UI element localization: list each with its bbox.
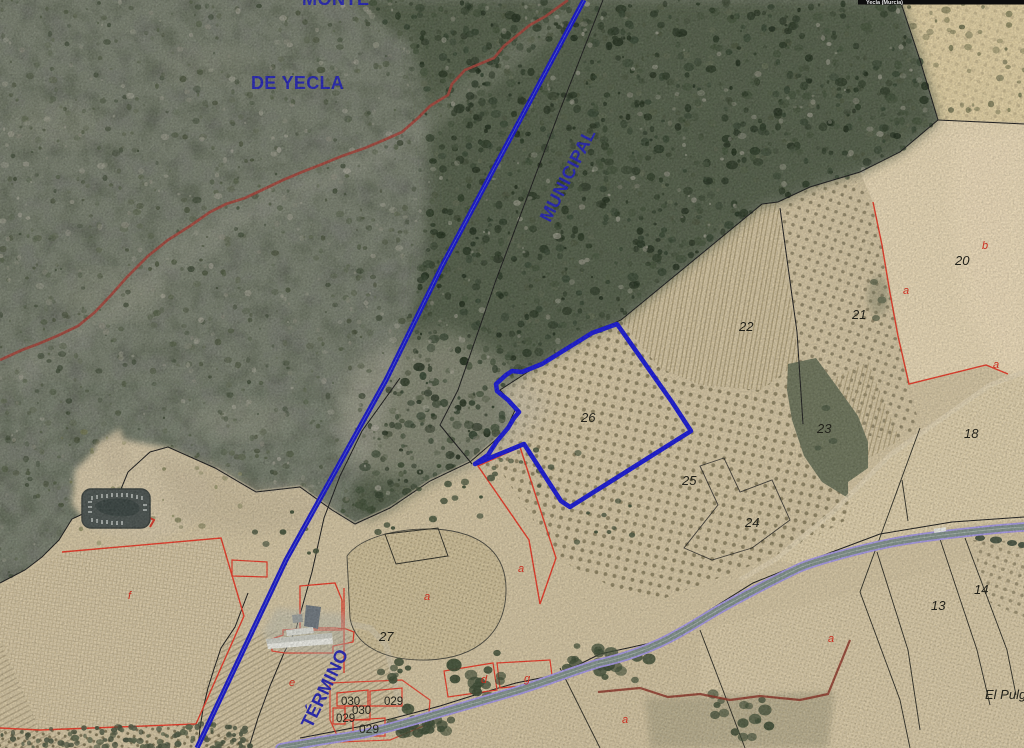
svg-text:Yecla (Murcia): Yecla (Murcia) <box>866 0 903 6</box>
